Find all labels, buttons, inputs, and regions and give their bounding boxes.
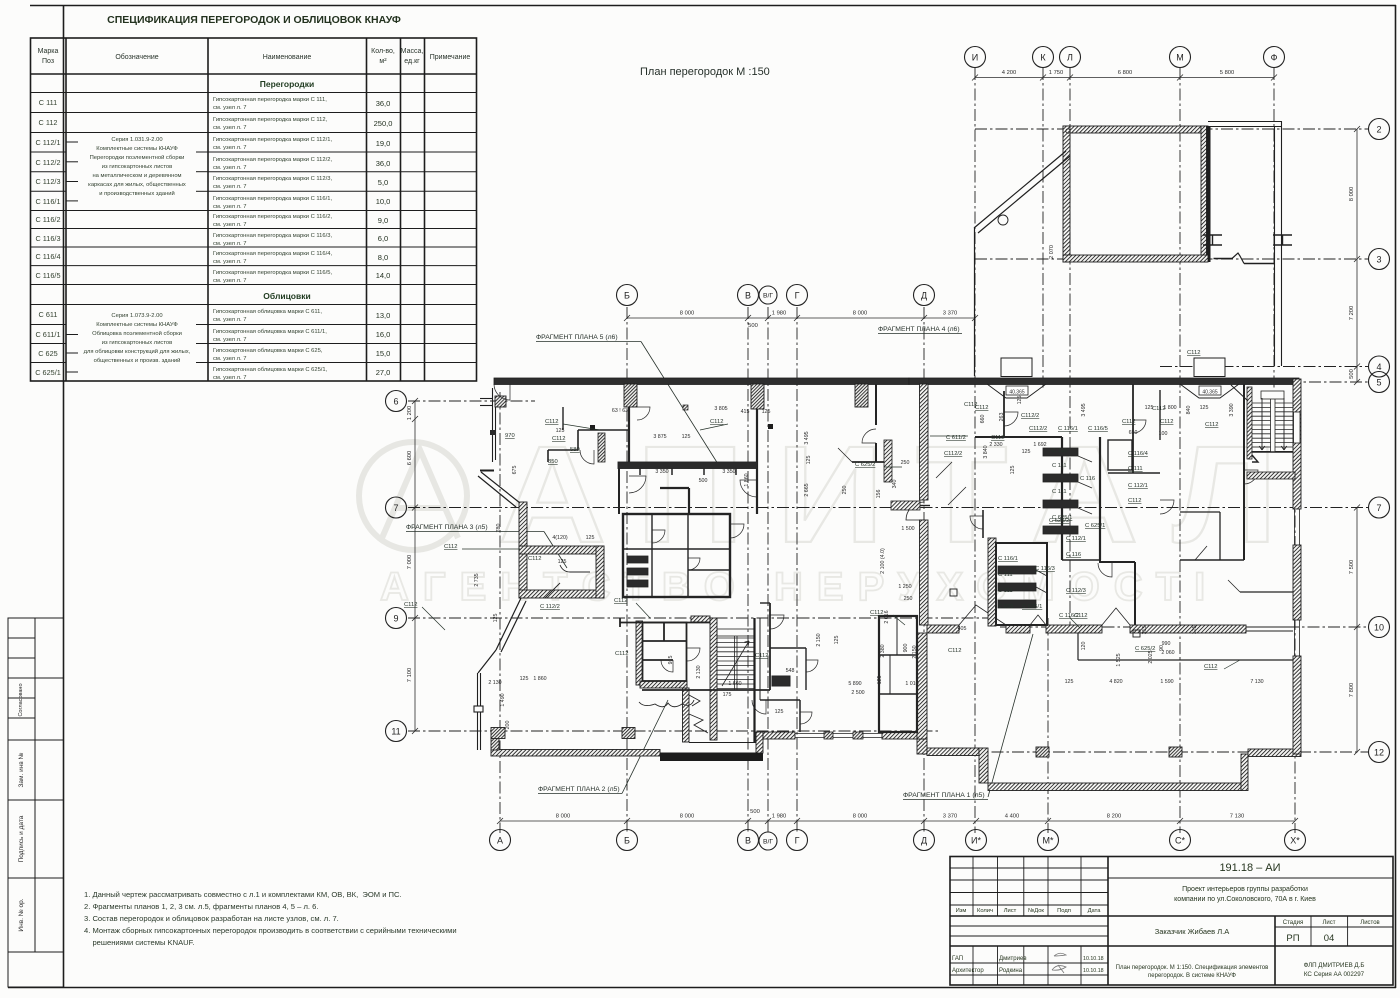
svg-text:Колич: Колич [977,908,993,914]
svg-text:Изм: Изм [956,908,967,914]
svg-text:Архитектор: Архитектор [952,968,984,974]
svg-text:Дмитриев: Дмитриев [999,956,1027,962]
svg-text:Листов: Листов [1360,920,1380,926]
svg-text:Дата: Дата [1088,908,1102,914]
svg-text:10.10.18: 10.10.18 [1083,968,1104,974]
svg-text:№Док: №Док [1028,908,1044,914]
svg-text:План перегородок. М 1:150. Спе: План перегородок. М 1:150. Спецификация … [1116,965,1269,971]
svg-text:Лист: Лист [1322,920,1335,926]
svg-text:Стадия: Стадия [1283,920,1303,926]
svg-text:компании по ул.Соколовского, 7: компании по ул.Соколовского, 70А в г. Ки… [1174,896,1316,903]
svg-text:Заказчик Жибаев Л.А: Заказчик Жибаев Л.А [1155,927,1230,936]
svg-text:191.18 – АИ: 191.18 – АИ [1219,862,1280,874]
svg-text:Проект интерьеров группы разра: Проект интерьеров группы разработки [1182,885,1308,893]
svg-text:перегородок. В системе КНАУФ: перегородок. В системе КНАУФ [1148,973,1236,979]
svg-text:Подп: Подп [1057,908,1071,914]
svg-text:10.10.18: 10.10.18 [1083,956,1104,962]
svg-text:04: 04 [1324,933,1335,944]
svg-text:ГАП: ГАП [952,956,963,962]
svg-text:ФЛП ДМИТРИЕВ Д.Б: ФЛП ДМИТРИЕВ Д.Б [1304,962,1365,969]
svg-text:РП: РП [1286,933,1299,944]
svg-text:Лист: Лист [1004,908,1017,914]
svg-text:Родкина: Родкина [999,968,1023,974]
svg-text:КС Серия АА 002297: КС Серия АА 002297 [1304,971,1365,978]
